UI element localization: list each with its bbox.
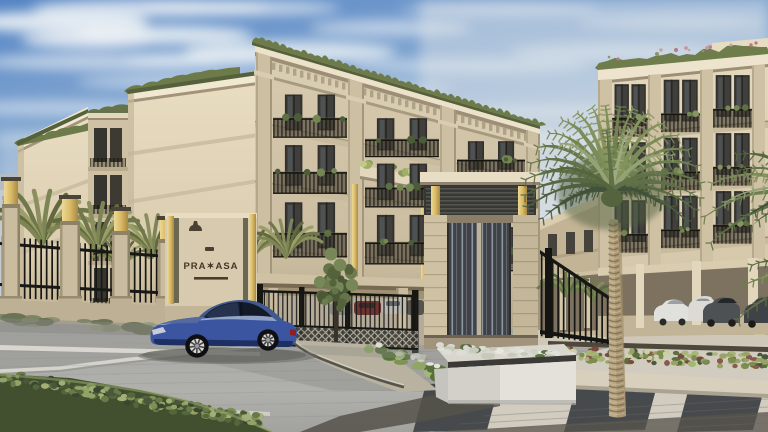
svg-text:PRA✶ASA: PRA✶ASA [183,261,238,272]
